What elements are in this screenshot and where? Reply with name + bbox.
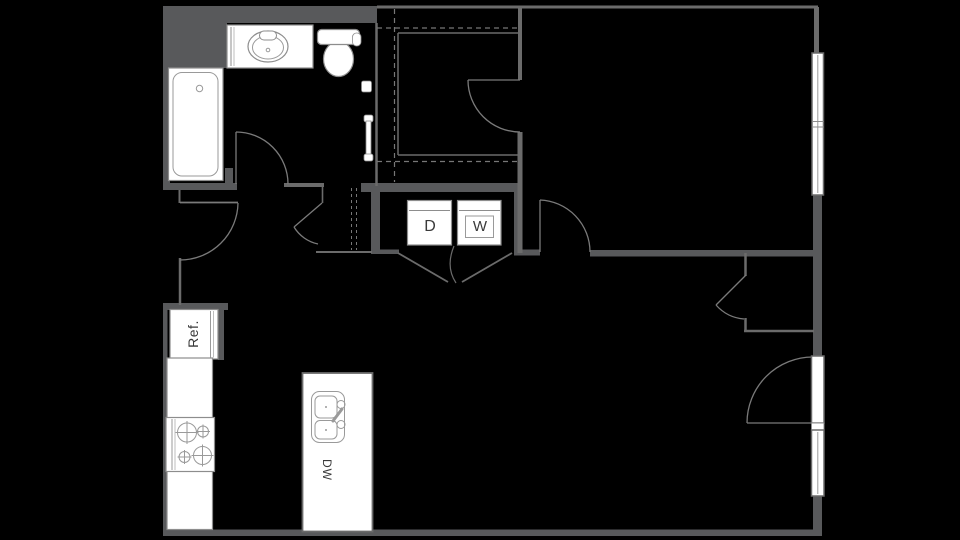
patio-door-arc bbox=[747, 357, 813, 423]
bedroom-door-arc bbox=[540, 200, 590, 252]
wall-corner-block bbox=[163, 6, 227, 68]
bifold-right-leaf bbox=[462, 253, 512, 282]
island-sink-drain-bottom bbox=[325, 429, 327, 431]
patio-door-panel bbox=[812, 356, 825, 423]
floor-plan-page: D W Ref. DW bbox=[0, 0, 960, 540]
sink-faucet bbox=[260, 31, 277, 40]
tub-outer bbox=[169, 68, 224, 181]
wall-bottom bbox=[163, 530, 821, 537]
patio-door-and-window bbox=[812, 356, 825, 496]
range bbox=[166, 418, 215, 472]
wall-bedroom-divider bbox=[590, 250, 821, 257]
wall-bathroom-bottom bbox=[163, 183, 237, 190]
hall-closet-door-arc bbox=[294, 227, 318, 244]
wall-laundry-left bbox=[371, 186, 380, 253]
bath-accessories bbox=[353, 33, 374, 161]
wall-ref-nook-right bbox=[218, 308, 224, 360]
washer-label: W bbox=[458, 219, 502, 234]
wall-right-lower-upper bbox=[813, 253, 822, 357]
island-box bbox=[303, 373, 373, 532]
closet-door-arc bbox=[468, 80, 520, 132]
wall-hook bbox=[362, 81, 372, 92]
wall-right-mid bbox=[813, 195, 822, 255]
hall-closet-rod bbox=[352, 188, 357, 250]
entry-door-arc bbox=[180, 203, 238, 260]
toilet-bowl bbox=[324, 42, 354, 77]
wall-right-lower-bottom bbox=[813, 496, 822, 536]
patio-door-rail bbox=[812, 423, 825, 430]
refrigerator-label: Ref. bbox=[186, 320, 200, 348]
wall-bathroom-door-jamb bbox=[225, 168, 233, 184]
bifold-left-leaf bbox=[398, 253, 448, 282]
floor-plan-drawing bbox=[0, 0, 960, 540]
island bbox=[303, 373, 373, 532]
nook-closet-door-leaf bbox=[716, 275, 746, 305]
dishwasher-label: DW bbox=[321, 459, 333, 481]
towel-bar bbox=[366, 121, 371, 155]
bifold-center-curve bbox=[450, 246, 456, 283]
bedroom-window bbox=[812, 53, 824, 195]
bathroom-door-arc bbox=[236, 132, 288, 184]
dryer-label: D bbox=[408, 219, 452, 235]
nook-closet-door-arc bbox=[716, 305, 744, 319]
wall-laundry-top bbox=[361, 183, 521, 192]
wall-stub-bifold-left bbox=[371, 250, 399, 255]
island-sink-drain-top bbox=[325, 406, 327, 408]
bathtub bbox=[169, 68, 224, 181]
vanity bbox=[227, 25, 313, 68]
toilet-paper-holder bbox=[353, 33, 362, 46]
towel-bar-cap-bottom bbox=[364, 154, 373, 161]
hall-closet-door-leaf bbox=[294, 203, 322, 227]
bifold-doors bbox=[398, 246, 512, 283]
walls-thick bbox=[163, 6, 822, 536]
